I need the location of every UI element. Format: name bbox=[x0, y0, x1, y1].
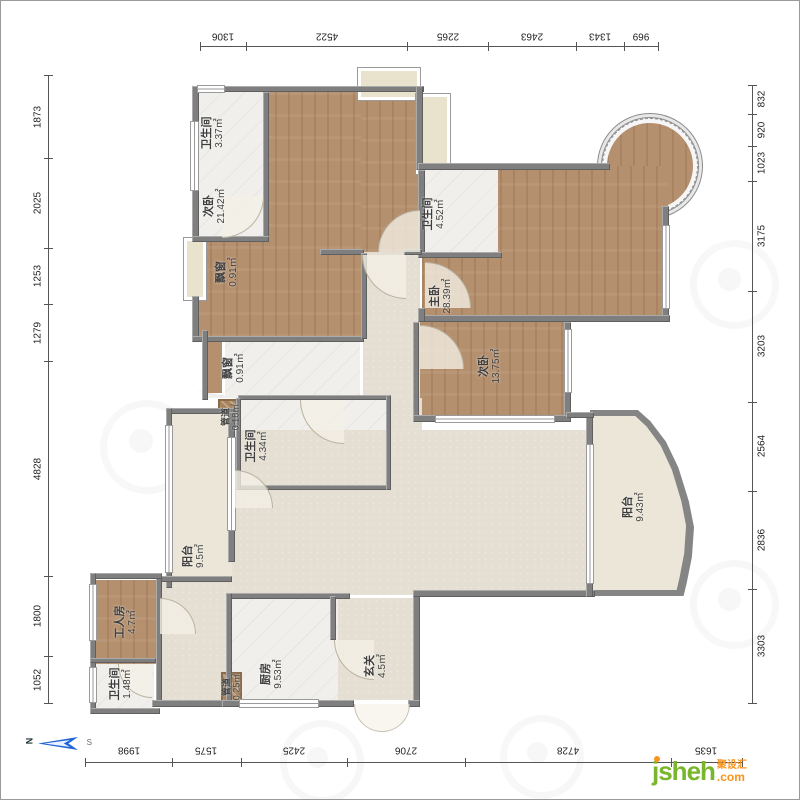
wall bbox=[386, 395, 391, 490]
front-door-arc-left bbox=[354, 704, 382, 732]
label-bedroom3: 次卧13.75㎡ bbox=[478, 348, 502, 383]
dim-tick bbox=[624, 42, 625, 51]
dim-value-left: 1873 bbox=[33, 106, 44, 128]
dim-tick bbox=[748, 402, 757, 403]
dim-value-bottom: 2706 bbox=[394, 745, 416, 756]
watermark-ring bbox=[690, 240, 779, 329]
dim-line-left bbox=[48, 75, 49, 703]
window bbox=[587, 445, 593, 583]
wall bbox=[320, 249, 364, 255]
window bbox=[90, 668, 96, 702]
label-balcony1: 阳台9.5㎡ bbox=[182, 544, 206, 568]
dim-tick bbox=[748, 181, 757, 182]
label-duct2: 管道0.25㎡ bbox=[222, 674, 243, 701]
wall bbox=[330, 596, 336, 640]
dim-value-left: 1253 bbox=[33, 265, 44, 287]
label-kitchen: 厨房9.53㎡ bbox=[260, 659, 284, 688]
dim-value-right: 3303 bbox=[757, 635, 768, 657]
dim-tick bbox=[748, 589, 757, 590]
watermark-ring bbox=[280, 720, 364, 800]
dim-value-top: 4522 bbox=[316, 31, 338, 42]
wall bbox=[416, 86, 423, 170]
window bbox=[436, 416, 554, 422]
dim-value-right: 1023 bbox=[757, 152, 768, 174]
label-worker: 工人房4.7㎡ bbox=[114, 606, 138, 639]
wall bbox=[413, 322, 419, 420]
logo-tld: .com bbox=[717, 771, 747, 783]
compass: N S bbox=[24, 733, 94, 755]
wall bbox=[202, 330, 208, 400]
room-kitchen-floor bbox=[230, 598, 346, 700]
dim-value-left: 1052 bbox=[33, 668, 44, 690]
floor-plan-page: 卫生间3.37㎡ 次卧21.42㎡ 飘窗0.91㎡ 卫生间4.52㎡ 主卧28.… bbox=[0, 0, 800, 800]
dim-tick bbox=[44, 248, 53, 249]
dim-tick bbox=[44, 361, 53, 362]
window bbox=[228, 438, 235, 530]
dim-tick bbox=[748, 146, 757, 147]
label-bay1: 飘窗0.91㎡ bbox=[215, 257, 239, 286]
wall bbox=[90, 708, 160, 714]
dim-value-left: 1279 bbox=[33, 322, 44, 344]
dim-value-bottom: 1575 bbox=[195, 745, 217, 756]
wall bbox=[418, 315, 670, 322]
label-bedroom2: 次卧21.42㎡ bbox=[203, 188, 227, 223]
wall bbox=[192, 86, 424, 92]
window bbox=[198, 86, 224, 92]
compass-south-label: S bbox=[87, 738, 92, 747]
bay-window-1 bbox=[184, 238, 206, 300]
dim-tick bbox=[407, 42, 408, 51]
label-bath2: 卫生间4.52㎡ bbox=[422, 198, 446, 231]
dim-tick bbox=[44, 158, 53, 159]
dim-tick bbox=[658, 42, 659, 51]
top-bay-window-a bbox=[358, 68, 420, 100]
label-bath1: 卫生间3.37㎡ bbox=[201, 117, 225, 150]
dim-value-top: 2463 bbox=[521, 31, 543, 42]
dim-value-top: 2265 bbox=[437, 31, 459, 42]
dim-value-right: 2564 bbox=[757, 435, 768, 457]
wall bbox=[418, 308, 425, 322]
wall bbox=[566, 412, 594, 418]
dim-tick bbox=[748, 703, 757, 704]
label-entry: 玄关4.5㎡ bbox=[364, 654, 388, 678]
dim-value-top: 1306 bbox=[212, 31, 234, 42]
label-balcony2: 阳台9.43㎡ bbox=[622, 492, 646, 521]
dim-value-right: 3175 bbox=[757, 225, 768, 247]
wall bbox=[413, 590, 420, 707]
label-bay2: 飘窗0.91㎡ bbox=[222, 353, 246, 382]
dim-value-bottom: 2425 bbox=[283, 745, 305, 756]
jsheh-logo: jsheh 聚设汇 .com bbox=[652, 760, 747, 783]
dim-value-left: 1800 bbox=[33, 605, 44, 627]
living-area-floor bbox=[230, 430, 586, 595]
wall bbox=[192, 336, 364, 342]
dim-line-right bbox=[752, 85, 753, 703]
wall bbox=[90, 658, 156, 663]
label-bath4: 卫生间1.48㎡ bbox=[109, 668, 133, 701]
dim-tick bbox=[85, 758, 86, 767]
dim-tick bbox=[465, 758, 466, 767]
wall bbox=[156, 576, 162, 706]
dim-tick bbox=[347, 758, 348, 767]
dim-value-right: 3203 bbox=[757, 335, 768, 357]
dim-tick bbox=[44, 75, 53, 76]
dim-value-left: 4828 bbox=[33, 457, 44, 479]
wall bbox=[263, 92, 269, 238]
dim-tick bbox=[44, 703, 53, 704]
label-master: 主卧28.39㎡ bbox=[429, 278, 453, 313]
wall bbox=[418, 252, 502, 258]
window bbox=[90, 585, 96, 640]
dim-tick bbox=[488, 42, 489, 51]
wall bbox=[158, 576, 232, 582]
dim-value-bottom: 1635 bbox=[695, 745, 717, 756]
wall bbox=[413, 590, 595, 597]
watermark-ring bbox=[500, 715, 584, 799]
dim-tick bbox=[246, 42, 247, 51]
dim-line-top bbox=[200, 46, 658, 47]
window bbox=[166, 426, 172, 572]
dim-tick bbox=[748, 291, 757, 292]
dim-tick bbox=[200, 42, 201, 51]
label-bath3: 卫生间4.34㎡ bbox=[245, 430, 269, 463]
dim-value-bottom: 1998 bbox=[117, 745, 139, 756]
dim-value-left: 2025 bbox=[33, 192, 44, 214]
window bbox=[191, 122, 198, 190]
label-duct1: 管道0.18㎡ bbox=[221, 404, 242, 431]
window bbox=[565, 330, 571, 392]
dim-tick bbox=[44, 576, 53, 577]
dim-value-top: 969 bbox=[632, 31, 649, 42]
dim-line-bottom bbox=[85, 762, 742, 763]
dim-value-right: 920 bbox=[757, 121, 768, 138]
dim-tick bbox=[576, 42, 577, 51]
dim-tick bbox=[44, 304, 53, 305]
dim-tick bbox=[241, 758, 242, 767]
wall bbox=[90, 573, 162, 579]
dim-tick bbox=[44, 656, 53, 657]
window bbox=[663, 226, 669, 308]
dim-tick bbox=[748, 491, 757, 492]
dim-value-bottom: 4728 bbox=[556, 745, 578, 756]
dim-tick bbox=[748, 85, 757, 86]
dim-tick bbox=[748, 114, 757, 115]
dim-value-right: 2836 bbox=[757, 528, 768, 550]
compass-north-label: N bbox=[24, 738, 34, 745]
window bbox=[240, 700, 318, 707]
wall bbox=[418, 163, 610, 170]
front-door-arc-right bbox=[382, 704, 410, 732]
dim-tick bbox=[172, 758, 173, 767]
logo-text: jsheh bbox=[652, 760, 715, 782]
dim-value-top: 1343 bbox=[588, 31, 610, 42]
logo-dot-icon bbox=[654, 756, 660, 762]
dim-value-right: 832 bbox=[757, 91, 768, 108]
